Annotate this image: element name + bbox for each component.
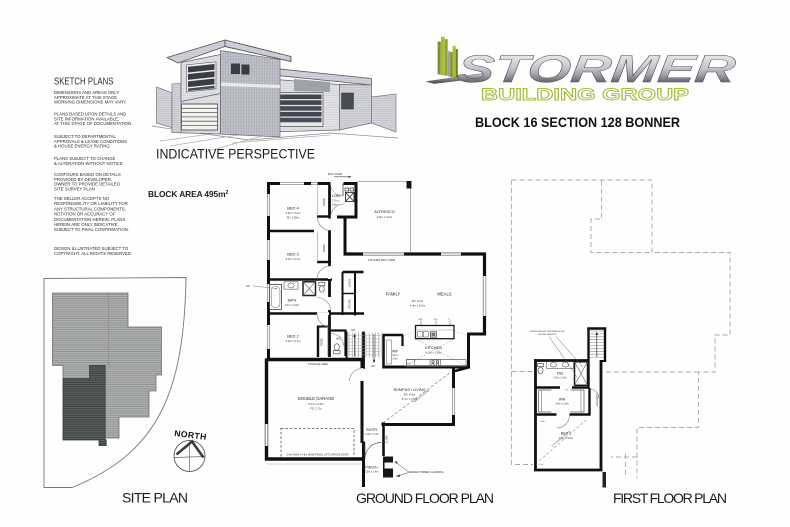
svg-text:ROBE: ROBE: [322, 198, 326, 206]
svg-text:UP: UP: [371, 364, 375, 368]
svg-text:2.1m: 2.1m: [539, 464, 544, 466]
svg-text:DOUBLE GARAGE: DOUBLE GARAGE: [298, 396, 335, 401]
svg-text:WIP: WIP: [392, 350, 398, 354]
svg-text:FD: 2.6m: FD: 2.6m: [412, 299, 424, 303]
svg-text:WIR: WIR: [559, 398, 566, 402]
svg-text:ENS: ENS: [557, 372, 564, 376]
svg-text:ALFRESCO: ALFRESCO: [374, 210, 395, 214]
svg-text:3.0m x 1.8m: 3.0m x 1.8m: [553, 377, 566, 380]
svg-text:RUMPUS / LIVING: RUMPUS / LIVING: [393, 388, 425, 392]
svg-text:SKETCH PLANS: SKETCH PLANS: [54, 77, 114, 88]
svg-text:FAMILY: FAMILY: [386, 292, 401, 297]
svg-text:BLOCK 16 SECTION 128 BONNER: BLOCK 16 SECTION 128 BONNER: [475, 114, 680, 130]
svg-text:& ALTERATION WITHOUT NOTICE: & ALTERATION WITHOUT NOTICE: [54, 161, 123, 166]
svg-text:FD: FD: [566, 390, 569, 392]
svg-text:BED 4: BED 4: [287, 206, 299, 211]
svg-text:LOBY: LOBY: [332, 194, 342, 198]
svg-text:MW: MW: [419, 319, 424, 321]
svg-text:BLOCK AREA 495m2: BLOCK AREA 495m2: [148, 189, 228, 199]
svg-text:3.0m x 3.4m: 3.0m x 3.4m: [286, 257, 302, 261]
svg-text:AT THIS STAGE OF DOCUMENTATION: AT THIS STAGE OF DOCUMENTATION.: [54, 121, 132, 126]
svg-text:MEALS: MEALS: [437, 292, 451, 297]
svg-text:FIRST FLOOR PLAN: FIRST FLOOR PLAN: [613, 490, 727, 506]
svg-text:NORTH: NORTH: [174, 428, 208, 442]
svg-text:ROBE: ROBE: [322, 244, 326, 252]
svg-text:BLD OVER: BLD OVER: [328, 172, 342, 176]
svg-text:BED 3: BED 3: [287, 252, 299, 257]
svg-text:RENDER TIMBER CLADDING: RENDER TIMBER CLADDING: [408, 470, 444, 474]
svg-text:CEILING MOUNT SHOWER ROSE: CEILING MOUNT SHOWER ROSE: [530, 331, 565, 333]
svg-text:SUBJECT TO FINAL CONFIRMATION.: SUBJECT TO FINAL CONFIRMATION.: [54, 227, 129, 232]
svg-text:WC: WC: [336, 337, 341, 341]
svg-text:FD: 2.55m: FD: 2.55m: [287, 216, 300, 220]
svg-text:STORMER: STORMER: [455, 48, 738, 91]
svg-text:2.4m: 2.4m: [540, 421, 545, 423]
svg-text:STORE: STORE: [348, 299, 352, 309]
svg-text:HALLWAY: HALLWAY: [595, 394, 599, 406]
svg-text:COPYRIGHT. ALL RIGHTS RESERVED: COPYRIGHT. ALL RIGHTS RESERVED.: [54, 251, 132, 256]
svg-text:CLOAK: CLOAK: [386, 434, 389, 443]
svg-text:CEILING HEIGHTS: CEILING HEIGHTS: [537, 334, 557, 336]
svg-text:2.6m: 2.6m: [392, 357, 397, 360]
svg-text:4.2m x 2.6m: 4.2m x 2.6m: [426, 350, 442, 354]
svg-text:PTY: PTY: [407, 364, 412, 366]
svg-text:1.5m x 1.4m: 1.5m x 1.4m: [365, 471, 379, 474]
svg-text:3.0m x 1.8m: 3.0m x 1.8m: [555, 403, 568, 406]
svg-text:WORKING DIMENSIONS MAY VARY.: WORKING DIMENSIONS MAY VARY.: [54, 100, 127, 105]
svg-text:WO: WO: [434, 319, 438, 321]
svg-text:& HOUSE ENERGY RATING: & HOUSE ENERGY RATING: [54, 144, 110, 149]
svg-text:FD: 2.7m: FD: 2.7m: [310, 406, 322, 410]
svg-text:1.0m x 3.7m: 1.0m x 3.7m: [365, 433, 379, 436]
svg-text:KITCHEN BLD OVER: KITCHEN BLD OVER: [368, 258, 395, 262]
svg-text:3.0m x 3.1m: 3.0m x 3.1m: [286, 339, 302, 343]
svg-text:PORCH: PORCH: [365, 465, 378, 469]
svg-text:UP: UP: [351, 328, 355, 332]
svg-text:4.0m: 4.0m: [332, 202, 338, 206]
svg-text:2.4m HIGH x 4.8m WIDE PANEL LI: 2.4m HIGH x 4.8m WIDE PANEL LIFT GARAGE …: [287, 453, 349, 456]
svg-text:2.7m x: 2.7m x: [332, 198, 340, 202]
svg-text:FD: 4.5m: FD: 4.5m: [404, 392, 416, 396]
svg-text:INDICATIVE PERSPECTIVE: INDICATIVE PERSPECTIVE: [156, 147, 315, 162]
svg-text:2.1m x 2.6m: 2.1m x 2.6m: [285, 303, 299, 307]
svg-text:KITCHEN: KITCHEN: [425, 346, 442, 350]
svg-text:GROUND FLOOR PLAN: GROUND FLOOR PLAN: [356, 490, 494, 506]
svg-text:6.0m x 6.0m: 6.0m x 6.0m: [308, 402, 324, 406]
svg-text:BATH: BATH: [288, 299, 297, 303]
svg-text:3.6m x 4.0m: 3.6m x 4.0m: [377, 215, 393, 219]
svg-text:SITE PLAN: SITE PLAN: [122, 490, 188, 506]
svg-text:FW: FW: [246, 285, 250, 288]
svg-text:4.4m x 5.0m: 4.4m x 5.0m: [410, 304, 426, 308]
svg-text:LINEN: LINEN: [348, 279, 352, 287]
svg-text:BUILDING GROUP: BUILDING GROUP: [481, 86, 689, 104]
svg-text:3.6m x 3.0m: 3.6m x 3.0m: [286, 211, 302, 215]
svg-text:STORAGE AREA: STORAGE AREA: [308, 362, 329, 366]
svg-text:BED 2: BED 2: [287, 334, 299, 339]
svg-text:ENTRY: ENTRY: [366, 428, 378, 432]
svg-text:SITE SURVEY PLAN: SITE SURVEY PLAN: [54, 186, 95, 191]
svg-text:ROBE: ROBE: [320, 338, 324, 346]
